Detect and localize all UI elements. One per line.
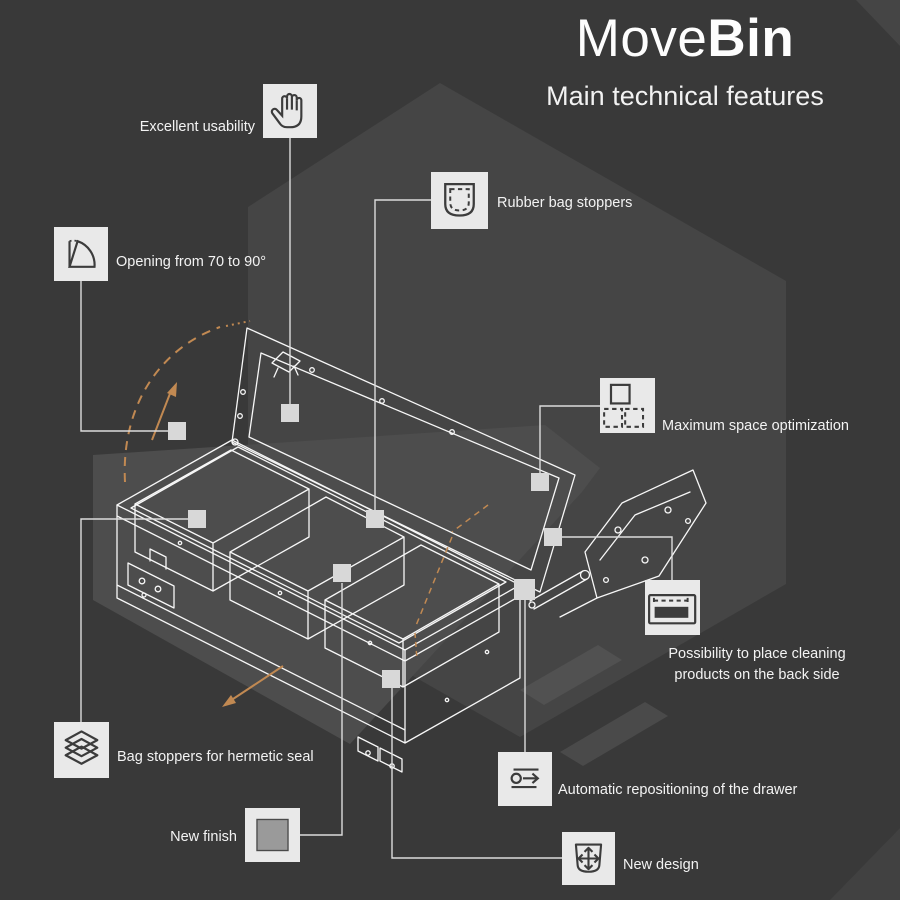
feature-label-reposition: Automatic repositioning of the drawer <box>558 780 797 801</box>
angle-arc-icon <box>54 227 108 281</box>
cleaning-products-icon-box <box>645 580 700 635</box>
new-design-icon-box <box>562 832 615 885</box>
front-foot <box>358 737 402 772</box>
hand-icon <box>263 84 317 138</box>
bg-corner-bottom-right <box>830 828 900 900</box>
callout-marker <box>333 564 351 582</box>
new-finish-icon-box <box>245 808 300 862</box>
feature-label-finish: New finish <box>170 827 237 848</box>
brand-regular: Move <box>576 9 708 68</box>
bag-pocket-icon <box>431 172 488 229</box>
feature-label-rubber: Rubber bag stoppers <box>497 193 632 214</box>
feature-label-opening: Opening from 70 to 90° <box>116 252 266 273</box>
page-title: MoveBin <box>470 10 900 68</box>
usability-icon-box <box>263 84 317 138</box>
feature-label-cleaning: Possibility to place cleaning products o… <box>668 644 846 686</box>
brand-bold: Bin <box>707 9 794 68</box>
callout-marker <box>514 579 535 600</box>
callout-marker <box>281 404 299 422</box>
page-header: MoveBin Main technical features <box>470 10 900 111</box>
layers-icon <box>54 722 109 778</box>
bin-arrows-icon <box>562 832 615 885</box>
shelf-products-icon <box>645 580 700 635</box>
page-subtitle: Main technical features <box>470 81 900 111</box>
feature-label-maxspace: Maximum space optimization <box>662 416 849 437</box>
hermetic-seal-icon-box <box>54 722 109 778</box>
feature-label-usability: Excellent usability <box>140 117 255 138</box>
feature-label-design: New design <box>623 855 699 876</box>
opening-angle-icon-box <box>54 227 108 281</box>
infographic-page: MoveBin Main technical features <box>0 0 900 900</box>
callout-marker <box>366 510 384 528</box>
callout-marker <box>188 510 206 528</box>
bg-chevron-2 <box>560 702 668 766</box>
callout-marker <box>168 422 186 440</box>
lid-arc-dotted-tip <box>226 321 250 326</box>
rubber-stoppers-icon-box <box>431 172 488 229</box>
callout-marker <box>531 473 549 491</box>
callout-marker <box>382 670 400 688</box>
slide-arrow-icon <box>498 752 552 806</box>
grid-squares-icon <box>600 378 655 433</box>
auto-reposition-icon-box <box>498 752 552 806</box>
finish-swatch-icon <box>245 808 300 862</box>
feature-label-hermetic: Bag stoppers for hermetic seal <box>117 747 314 768</box>
connector-opening <box>81 281 168 431</box>
callout-marker <box>544 528 562 546</box>
space-optimization-icon-box <box>600 378 655 433</box>
